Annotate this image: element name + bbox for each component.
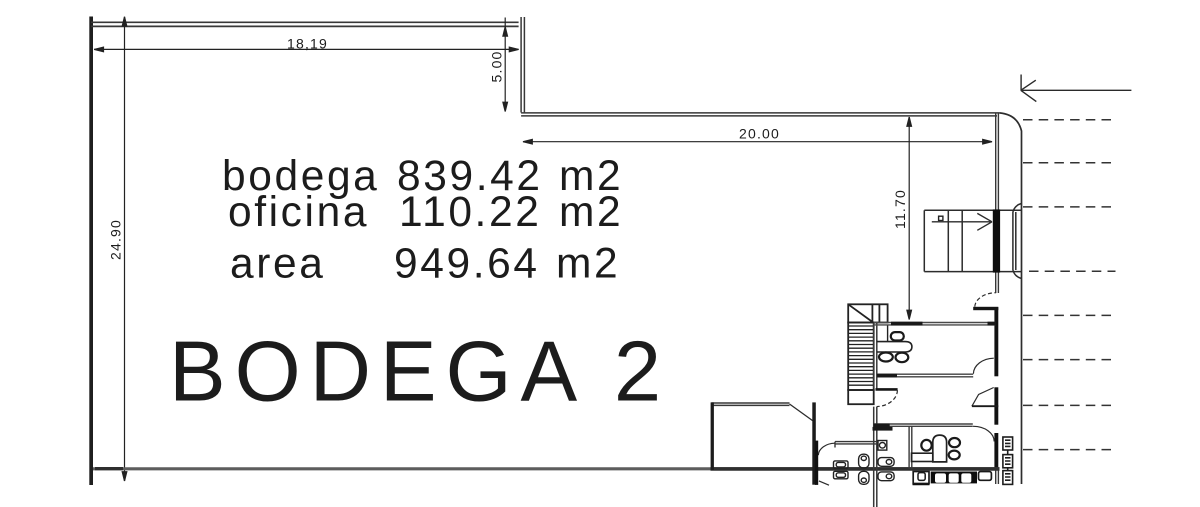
svg-text:11.70: 11.70 (892, 189, 908, 229)
svg-text:BODEGA 2: BODEGA 2 (169, 325, 670, 420)
svg-text:20.00: 20.00 (739, 126, 780, 142)
svg-text:18,19: 18,19 (287, 36, 328, 52)
svg-text:area949.64m2: area949.64m2 (230, 241, 620, 288)
svg-text:oficina110.22m2: oficina110.22m2 (228, 189, 623, 236)
svg-text:24.90: 24.90 (108, 219, 124, 260)
svg-text:5.00: 5.00 (489, 50, 505, 82)
